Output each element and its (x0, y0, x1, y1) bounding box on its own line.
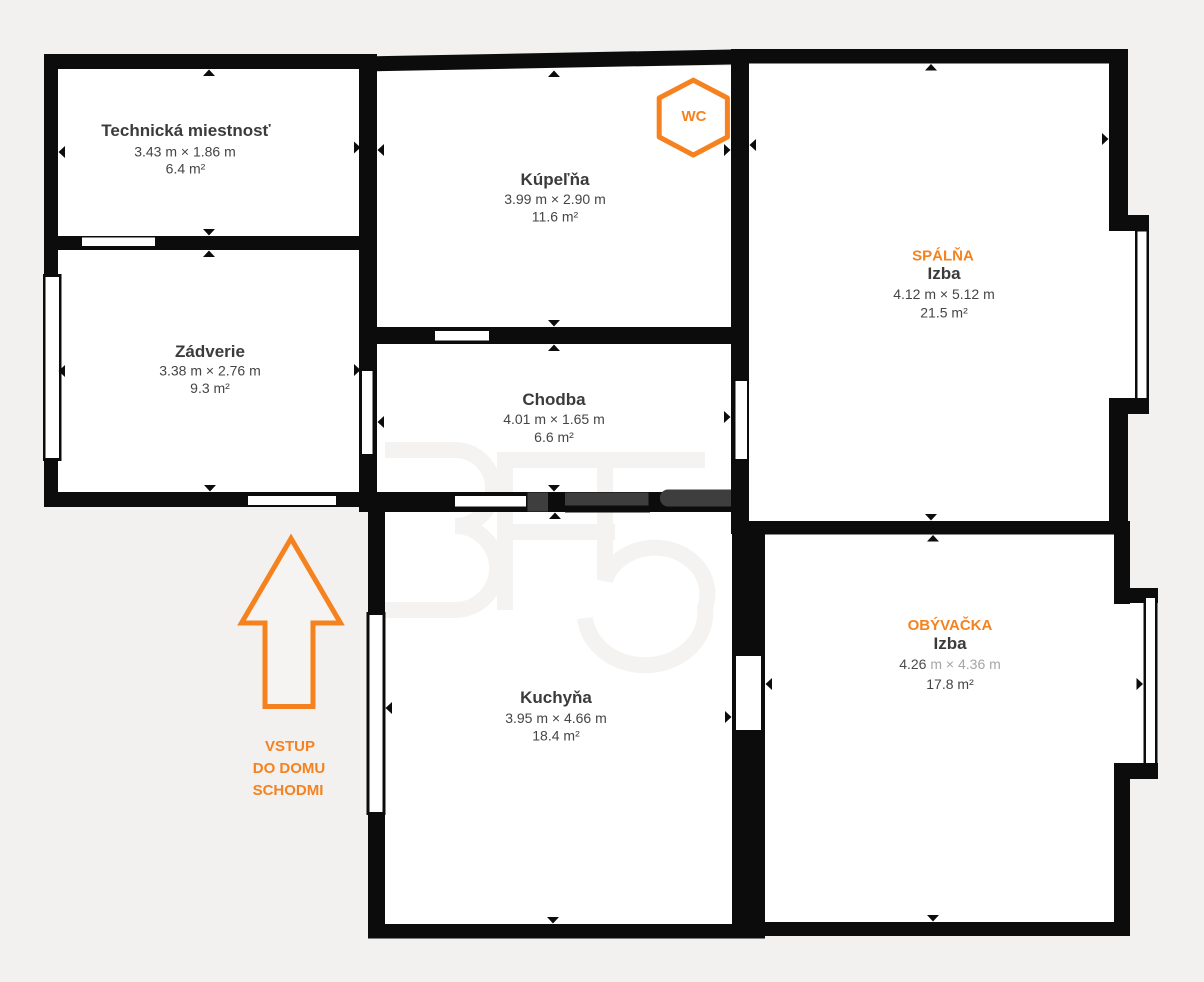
svg-text:WC: WC (682, 108, 707, 125)
svg-text:4.26 m × 4.36 m: 4.26 m × 4.36 m (899, 656, 1001, 672)
svg-text:SPÁLŇA: SPÁLŇA (912, 247, 974, 265)
svg-text:6.6 m²: 6.6 m² (534, 429, 574, 445)
svg-text:OBÝVAČKA: OBÝVAČKA (908, 616, 993, 634)
svg-text:21.5 m²: 21.5 m² (920, 305, 968, 321)
svg-text:4.12 m × 5.12 m: 4.12 m × 5.12 m (893, 286, 995, 302)
svg-text:Chodba: Chodba (522, 390, 586, 409)
svg-text:18.4 m²: 18.4 m² (532, 728, 580, 744)
svg-text:Izba: Izba (927, 264, 961, 283)
svg-text:3.38 m × 2.76 m: 3.38 m × 2.76 m (159, 363, 261, 379)
svg-text:17.8 m²: 17.8 m² (926, 676, 974, 692)
svg-text:Technická miestnosť: Technická miestnosť (101, 121, 271, 140)
svg-text:3.43 m × 1.86 m: 3.43 m × 1.86 m (134, 144, 236, 160)
svg-text:6.4 m²: 6.4 m² (166, 161, 206, 177)
svg-text:Izba: Izba (933, 634, 967, 653)
svg-text:3.95 m × 4.66 m: 3.95 m × 4.66 m (505, 710, 607, 726)
svg-text:VSTUP: VSTUP (265, 738, 315, 755)
svg-text:Kúpeľňa: Kúpeľňa (521, 170, 590, 189)
svg-text:Zádverie: Zádverie (175, 342, 245, 361)
svg-text:Kuchyňa: Kuchyňa (520, 688, 592, 707)
svg-text:SCHODMI: SCHODMI (253, 782, 324, 799)
svg-text:4.01 m × 1.65 m: 4.01 m × 1.65 m (503, 411, 605, 427)
svg-text:11.6 m²: 11.6 m² (532, 209, 579, 225)
svg-text:3.99 m × 2.90 m: 3.99 m × 2.90 m (504, 191, 606, 207)
svg-text:9.3 m²: 9.3 m² (190, 380, 230, 396)
svg-text:DO DOMU: DO DOMU (253, 760, 326, 777)
